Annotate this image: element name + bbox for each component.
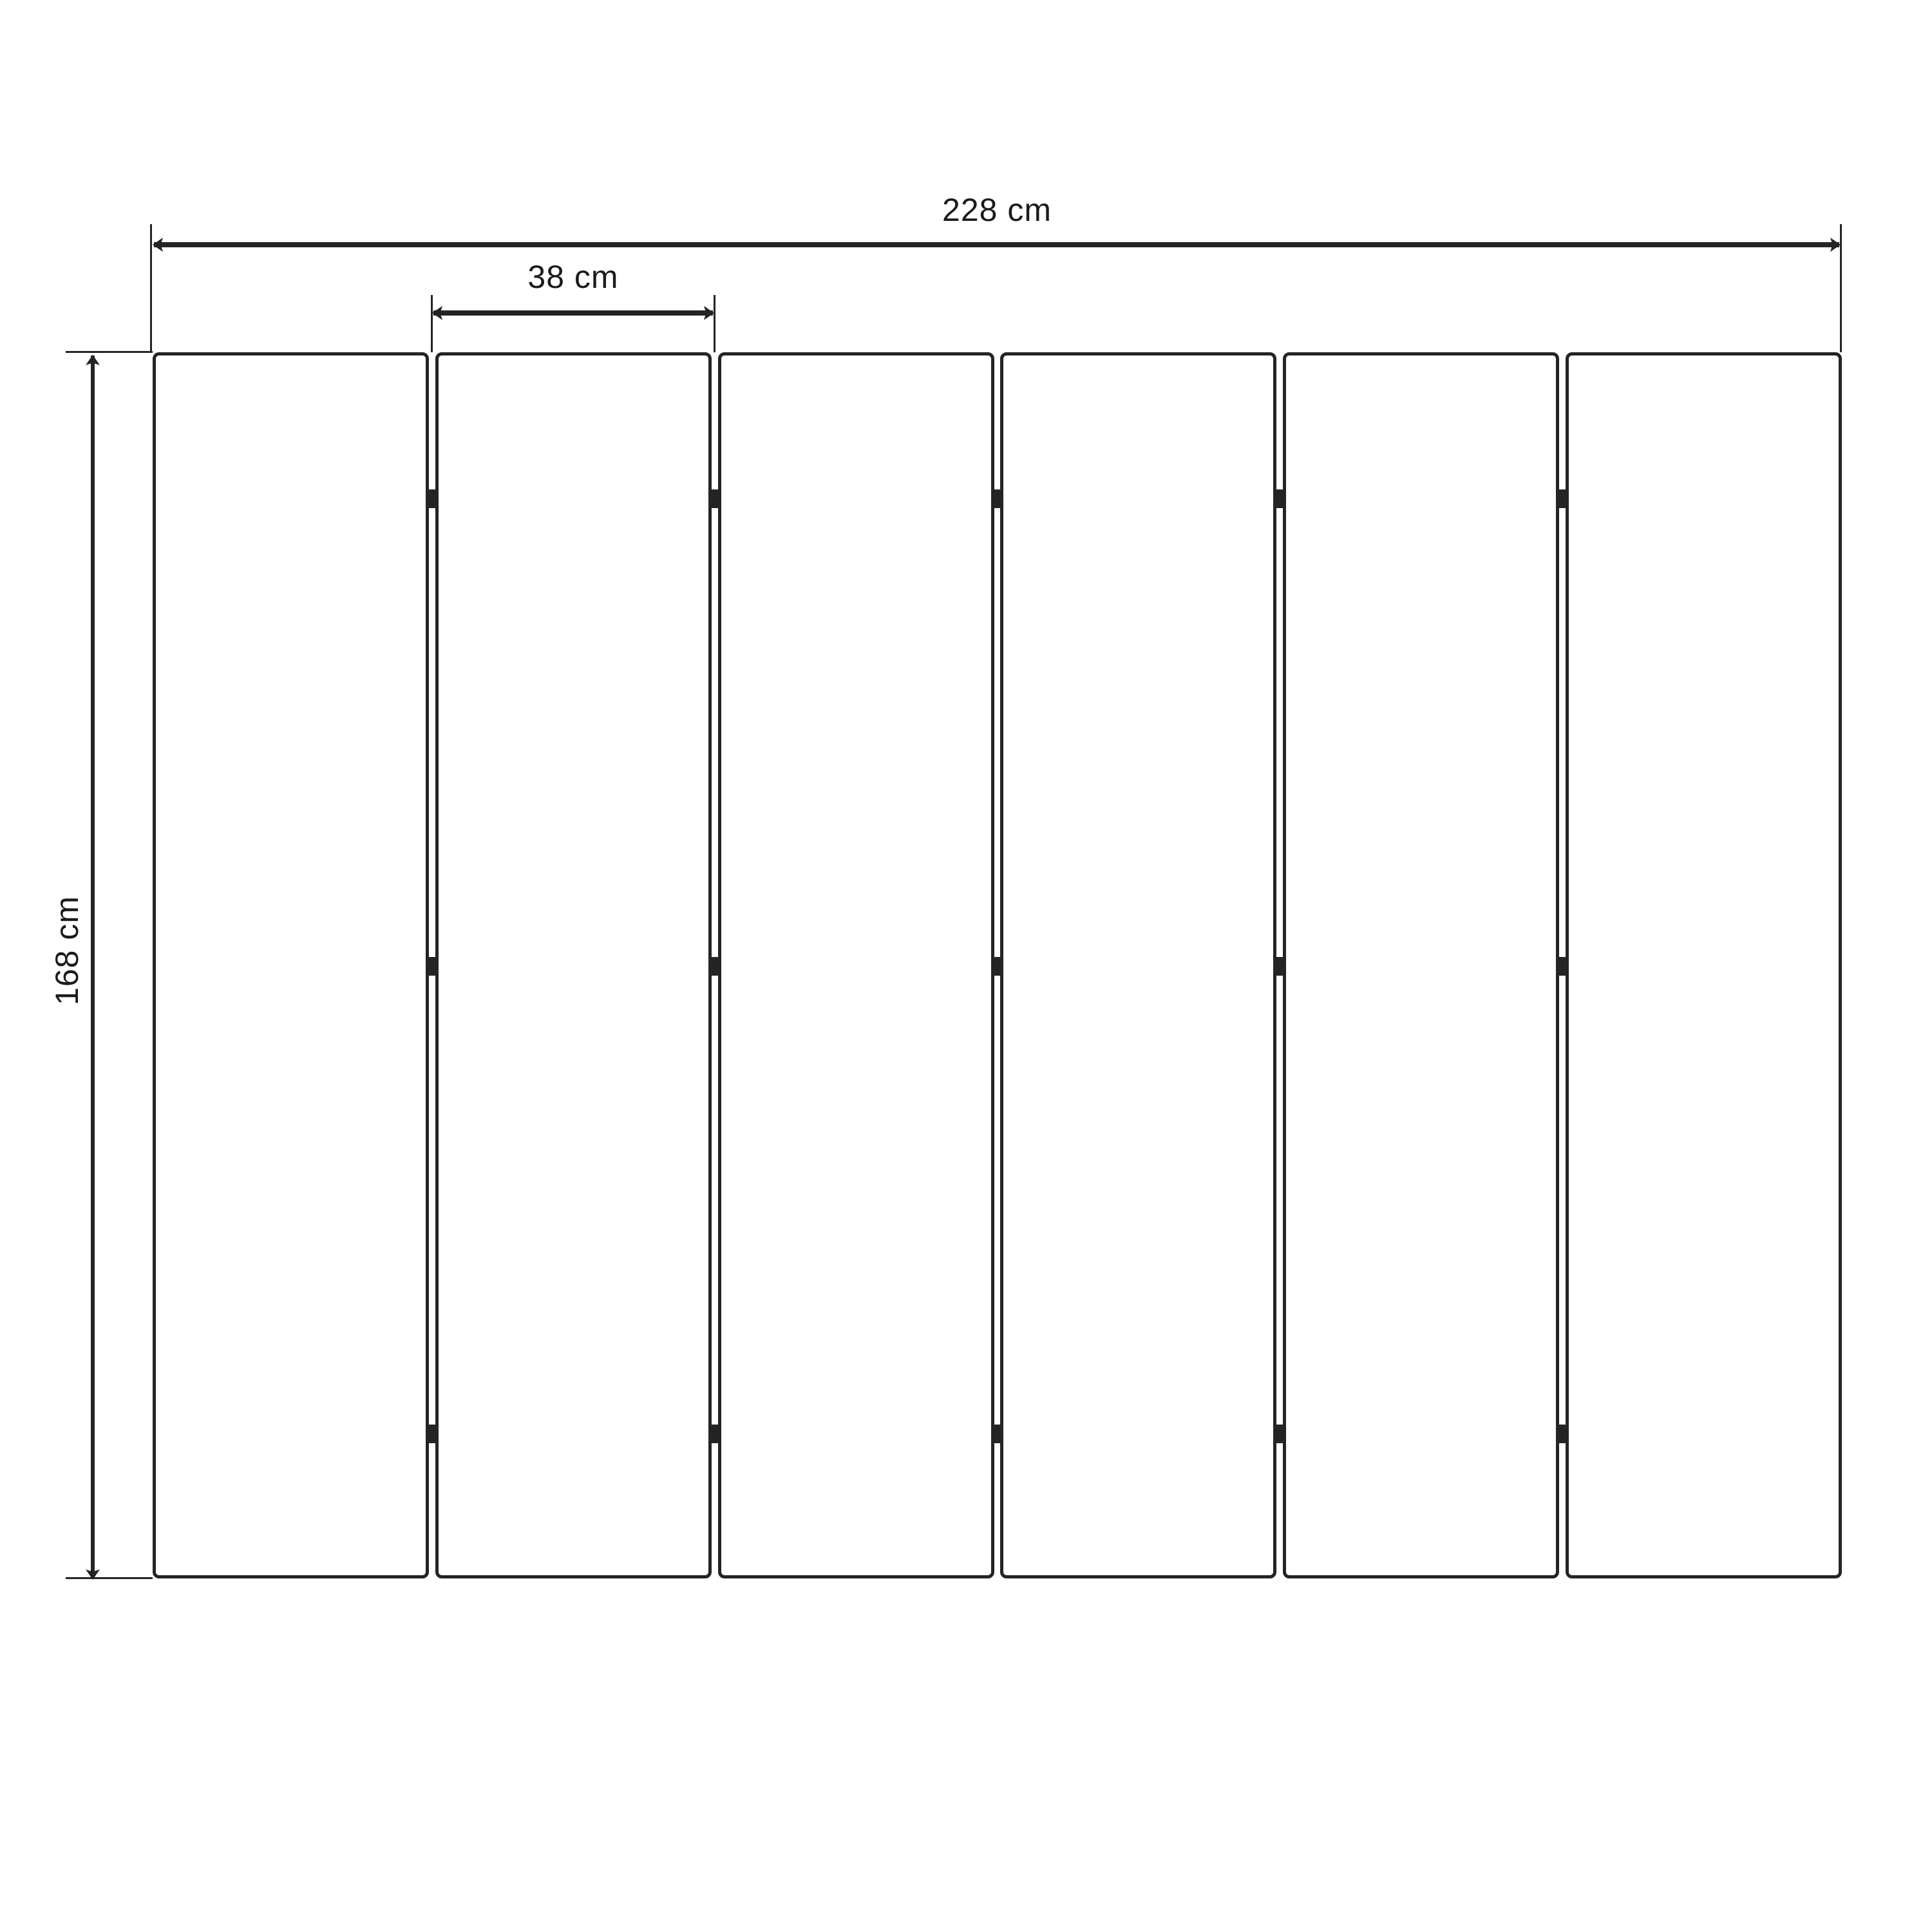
arrow-left-icon [153, 238, 163, 252]
arrow-right-icon [1830, 238, 1841, 252]
panel-4 [1000, 352, 1276, 1578]
panel-width-label: 38 cm [444, 260, 702, 294]
hinge [710, 1425, 719, 1443]
hinge [428, 1425, 436, 1443]
hinge [428, 957, 436, 976]
ext-line-height-top [66, 351, 153, 353]
height-label: 168 cm [50, 822, 84, 1079]
hinge [710, 957, 719, 976]
ext-line-height-bottom [66, 1577, 153, 1579]
hinge [993, 1425, 1001, 1443]
arrow-up-icon [86, 355, 100, 365]
arrow-down-icon [86, 1569, 100, 1580]
hinge [1558, 1425, 1566, 1443]
hinge [1275, 1425, 1283, 1443]
hinge [1275, 489, 1283, 508]
panel-3 [718, 352, 994, 1578]
hinge [1558, 489, 1566, 508]
hinge [1558, 957, 1566, 976]
arrow-left-icon [432, 306, 442, 320]
arrow-right-icon [704, 306, 714, 320]
hinge [428, 489, 436, 508]
hinge [1275, 957, 1283, 976]
panel-layout-diagram: 228 cm 38 cm 168 cm [0, 0, 1932, 1932]
ext-line-panel-right [714, 295, 715, 352]
dim-line-total-width [154, 242, 1839, 247]
total-width-label: 228 cm [868, 193, 1126, 227]
panel-5 [1283, 352, 1559, 1578]
hinge [993, 489, 1001, 508]
panel-6 [1566, 352, 1842, 1578]
ext-line-panel-left [431, 295, 433, 352]
panel-2 [435, 352, 712, 1578]
dim-line-height [91, 355, 95, 1578]
ext-line-total-left [150, 224, 152, 352]
hinge [710, 489, 719, 508]
dim-line-panel-width [433, 310, 713, 316]
panel-1 [153, 352, 429, 1578]
hinge [993, 957, 1001, 976]
